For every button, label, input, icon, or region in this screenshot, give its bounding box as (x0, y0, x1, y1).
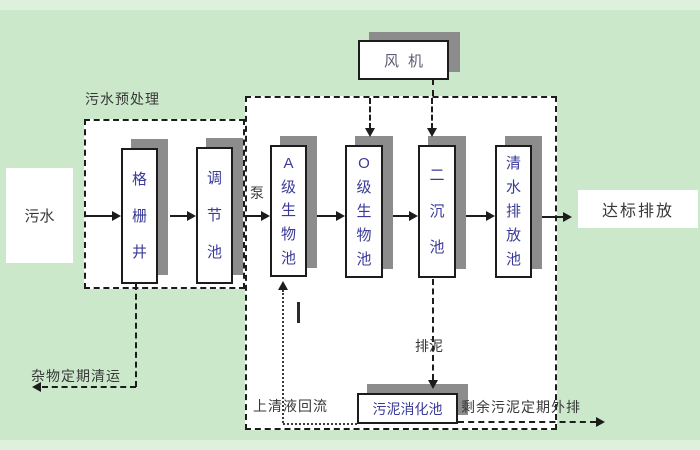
top-band (0, 0, 700, 10)
excess-sludge-label: 剩余污泥定期外排 (461, 397, 581, 417)
tank-label-char: 调 (207, 171, 222, 186)
tank-label-char: 井 (132, 245, 147, 260)
tank-label-char: 池 (281, 251, 296, 266)
secondary-clarifier-node: 二沉池 (418, 145, 456, 278)
flow-arrow-o-to-clarifier-icon (409, 211, 418, 221)
flow-arrow-effluent-icon (563, 212, 572, 222)
tank-label-char: 格 (132, 172, 147, 187)
tank-label-char: 池 (506, 252, 521, 267)
tank-label-char: 水 (506, 180, 521, 195)
tank-label-char: O (358, 156, 370, 171)
flow-arrow-influent-icon (112, 211, 121, 221)
influent-box: 污水 (6, 168, 73, 263)
flow-arrow-gridwell-regulating-icon (187, 211, 196, 221)
air-line-clarifier (431, 98, 433, 129)
sludge-digester-node: 污泥消化池 (357, 393, 458, 424)
tank-label-char: 物 (281, 227, 296, 242)
flow-arrow-a-to-o-icon (336, 211, 345, 221)
tank-label-char: 级 (356, 180, 371, 195)
clean-water-tank-node: 清水排放池 (495, 145, 532, 278)
tank-a-node: A级生物池 (270, 145, 307, 277)
excess-sludge-line (458, 421, 596, 423)
tank-label-char: 二 (429, 168, 444, 183)
tank-label-char: 池 (429, 240, 444, 255)
flow-line-influent (84, 215, 112, 217)
flow-arrow-pump-icon (261, 211, 270, 221)
tank-label-char: 排 (506, 204, 521, 219)
flow-line-clarifier-to-cleanwater (466, 215, 486, 217)
tank-label-char: 清 (506, 156, 521, 171)
blower-label: 风机 (375, 50, 432, 71)
sludge-arrow-icon (428, 380, 438, 389)
flow-arrow-clarifier-to-cleanwater-icon (486, 211, 495, 221)
blower-node: 风机 (358, 40, 449, 80)
supernatant-return-label: 上清液回流 (253, 396, 328, 416)
air-arrow-clarifier-icon (427, 128, 437, 137)
air-arrow-tank-o-icon (365, 128, 375, 137)
tank-label-char: 沉 (429, 204, 444, 219)
debris-line-vertical (135, 284, 137, 387)
air-line-tank-o (369, 98, 371, 129)
valve-tick-mark (297, 302, 300, 323)
regulating-tank-node: 调节池 (196, 147, 233, 284)
tank-label-char: 生 (356, 204, 371, 219)
tank-label-char: 池 (207, 245, 222, 260)
influent-label: 污水 (24, 205, 54, 226)
tank-label-char: 物 (356, 228, 371, 243)
tank-label-char: 栅 (132, 209, 147, 224)
flow-line-pump (245, 215, 261, 217)
excess-sludge-arrow-icon (596, 417, 605, 427)
sludge-discharge-label: 排泥 (415, 336, 443, 356)
return-arrow-icon (278, 281, 288, 290)
flow-line-o-to-clarifier (393, 215, 409, 217)
return-line-horizontal (283, 423, 357, 425)
flow-line-effluent (542, 216, 563, 218)
bottom-band (0, 440, 700, 450)
tank-label-char: A (283, 156, 293, 171)
effluent-box: 达标排放 (578, 190, 698, 228)
pump-label: 泵 (250, 183, 264, 203)
tank-label-char: 生 (281, 203, 296, 218)
tank-o-node: O级生物池 (345, 145, 383, 278)
grid-well-node: 格栅井 (121, 148, 158, 284)
blower-drop-line (432, 79, 434, 96)
tank-label-char: 节 (207, 208, 222, 223)
debris-removal-label: 杂物定期清运 (31, 366, 121, 386)
pretreatment-label: 污水预处理 (85, 89, 160, 109)
debris-line-horizontal (42, 386, 136, 388)
sludge-line (432, 279, 434, 380)
process-flow-diagram: 污水 达标排放 风机 格栅井 调节池 A级生物池 O级生物池 二沉池 清水排放池… (0, 0, 700, 450)
flow-line-a-to-o (317, 215, 336, 217)
sludge-digester-label: 污泥消化池 (373, 399, 443, 419)
tank-label-char: 放 (506, 228, 521, 243)
flow-line-gridwell-regulating (170, 215, 187, 217)
effluent-label: 达标排放 (602, 197, 674, 221)
tank-label-char: 级 (281, 180, 296, 195)
tank-label-char: 池 (356, 252, 371, 267)
